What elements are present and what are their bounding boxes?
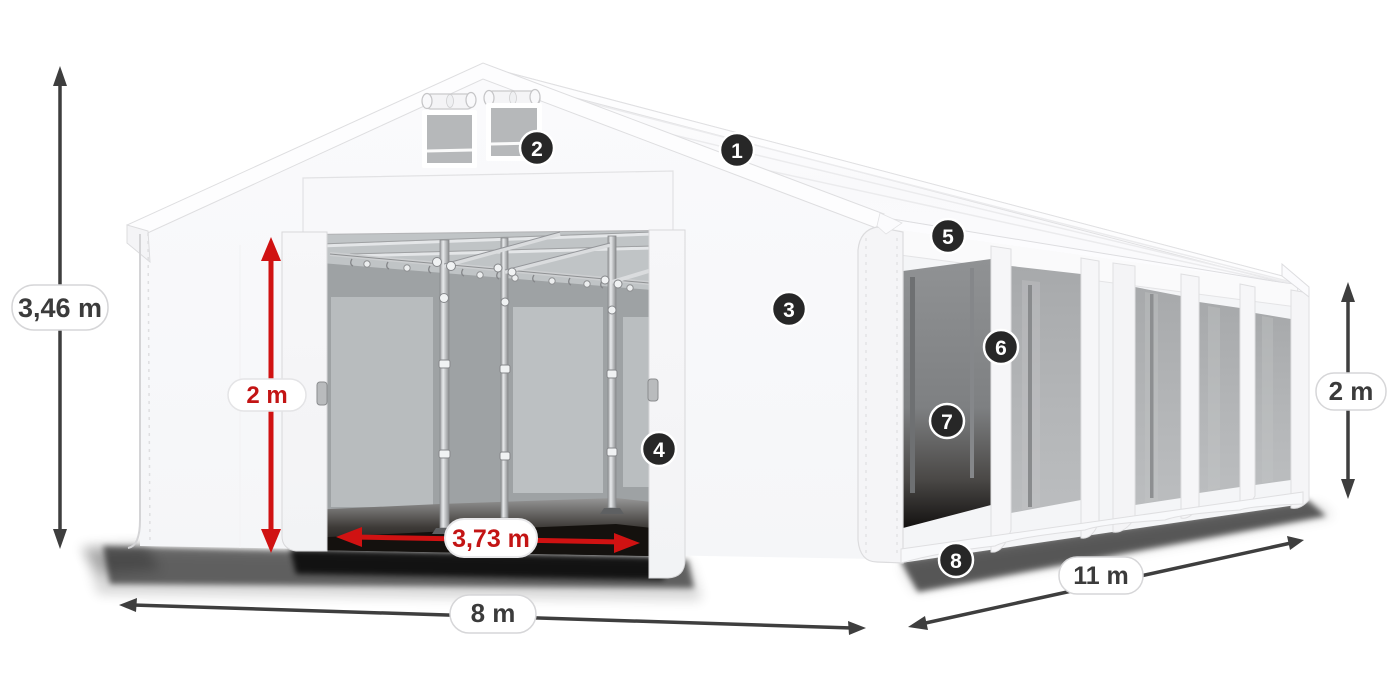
svg-text:11 m: 11 m	[1073, 562, 1129, 590]
svg-text:3,73 m: 3,73 m	[452, 525, 530, 553]
svg-text:8 m: 8 m	[471, 598, 516, 628]
svg-text:2 m: 2 m	[246, 382, 287, 409]
svg-text:6: 6	[995, 337, 1007, 360]
svg-text:2 m: 2 m	[1329, 376, 1374, 406]
svg-text:1: 1	[731, 140, 743, 163]
svg-text:5: 5	[942, 226, 954, 249]
svg-text:3,46 m: 3,46 m	[18, 293, 102, 323]
svg-text:7: 7	[941, 411, 953, 434]
svg-text:4: 4	[653, 439, 665, 462]
svg-text:3: 3	[783, 299, 795, 322]
svg-text:8: 8	[950, 550, 962, 573]
svg-text:2: 2	[531, 138, 543, 161]
